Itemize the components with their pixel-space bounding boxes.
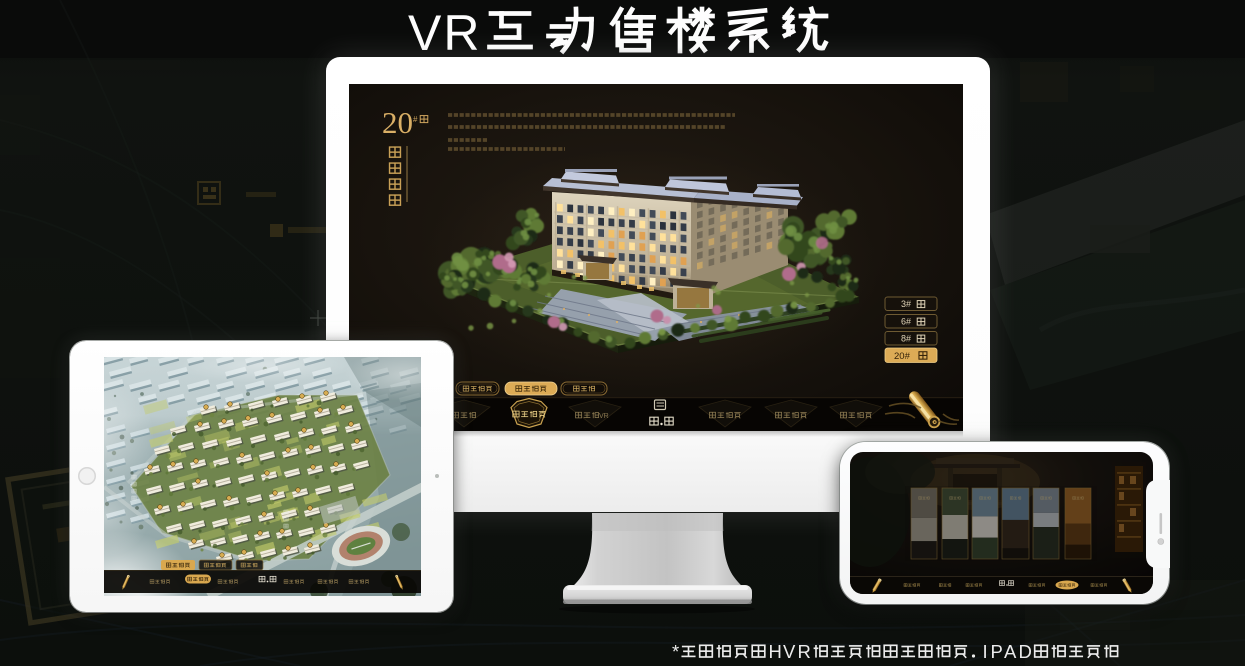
- svg-text:I: I: [983, 641, 988, 662]
- svg-text:D: D: [1019, 641, 1032, 662]
- svg-text:R: R: [798, 641, 811, 662]
- svg-text:A: A: [1004, 641, 1017, 662]
- svg-text:P: P: [991, 641, 1003, 662]
- svg-text:V: V: [783, 641, 796, 662]
- svg-text:*: *: [672, 641, 679, 662]
- svg-text:H: H: [769, 641, 782, 662]
